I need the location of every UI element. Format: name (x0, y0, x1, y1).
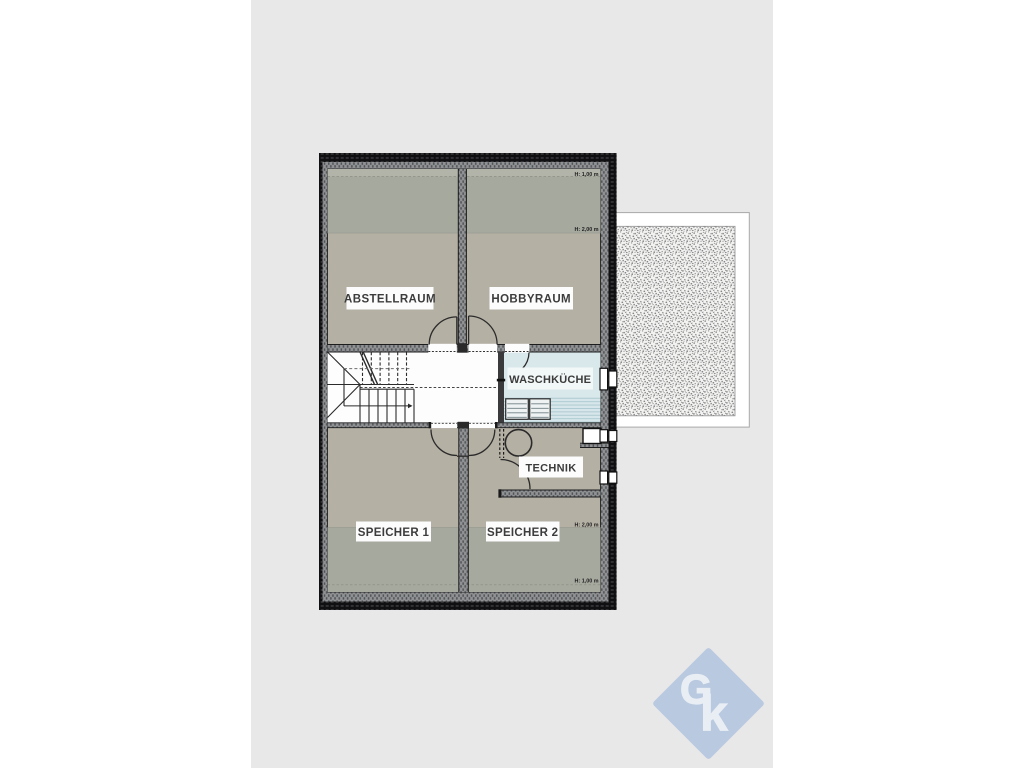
svg-text:WASCHKÜCHE: WASCHKÜCHE (509, 373, 591, 386)
svg-text:H: 2,00 m: H: 2,00 m (575, 227, 599, 233)
svg-text:H: 1,00 m: H: 1,00 m (575, 579, 599, 585)
svg-text:H: 1,00 m: H: 1,00 m (575, 172, 599, 178)
svg-text:k: k (700, 685, 728, 741)
svg-text:HOBBYRAUM: HOBBYRAUM (491, 294, 571, 306)
svg-text:ABSTELLRAUM: ABSTELLRAUM (344, 294, 436, 306)
svg-text:TECHNIK: TECHNIK (526, 463, 577, 475)
svg-text:H: 2,00 m: H: 2,00 m (575, 523, 599, 529)
svg-text:SPEICHER 1: SPEICHER 1 (358, 527, 430, 539)
svg-text:SPEICHER 2: SPEICHER 2 (487, 527, 558, 539)
